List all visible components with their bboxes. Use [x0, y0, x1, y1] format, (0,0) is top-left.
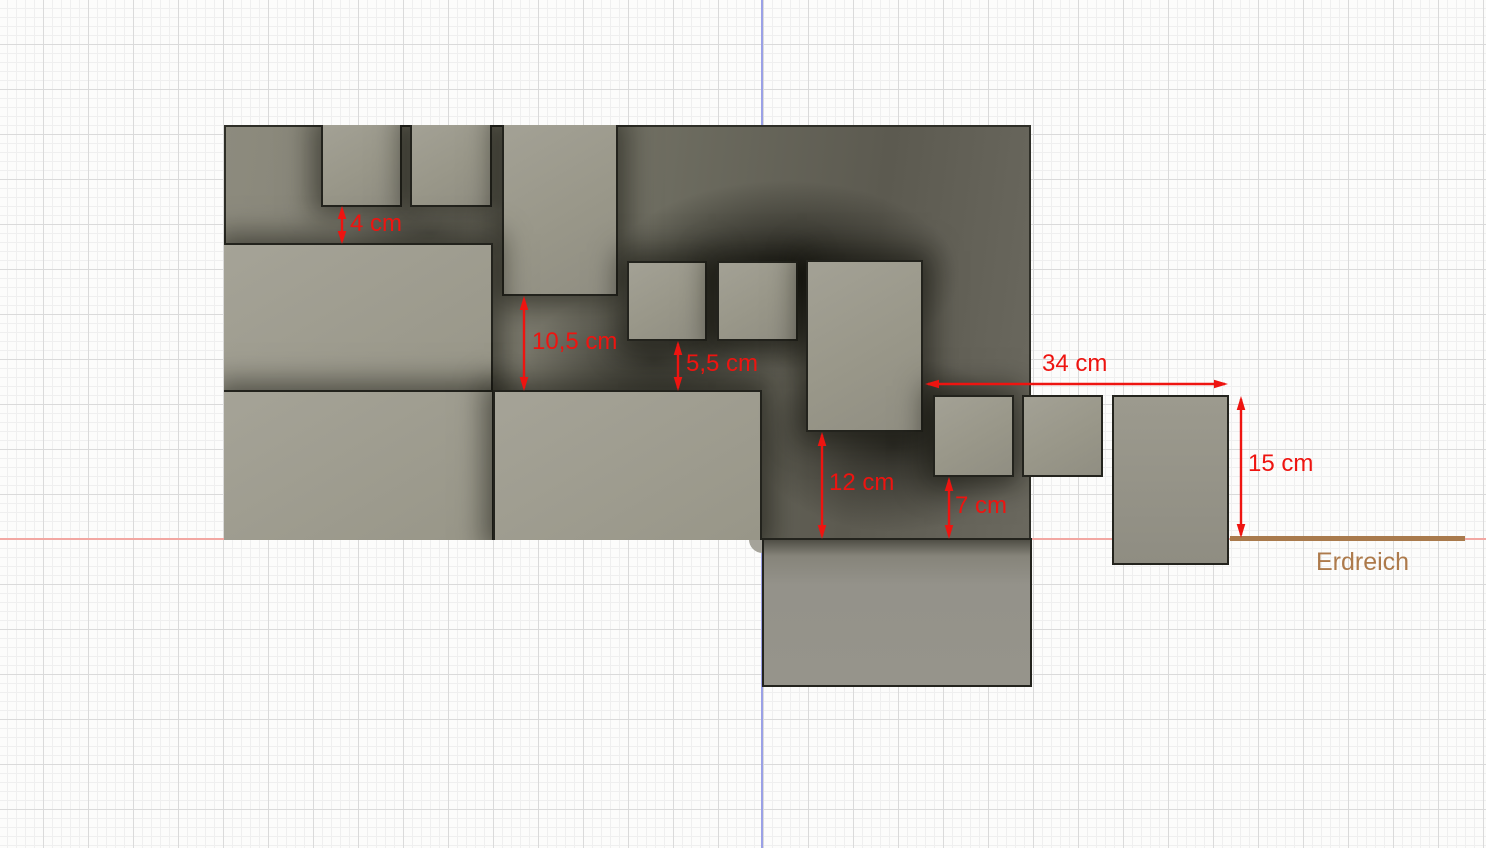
dimension-arrow-12cm[interactable] [815, 432, 829, 539]
dimension-arrow-5-5cm[interactable] [671, 341, 685, 391]
block-top-square-2[interactable] [410, 125, 492, 207]
block-bottom-mid[interactable] [493, 390, 762, 540]
block-right-tall[interactable] [1112, 395, 1229, 565]
ground-line[interactable] [1230, 536, 1465, 541]
block-low-square-1[interactable] [933, 395, 1014, 477]
ground-label[interactable]: Erdreich [1316, 548, 1409, 577]
block-low-square-2[interactable] [1022, 395, 1103, 477]
block-mid-left[interactable] [224, 243, 493, 392]
dimension-arrow-34cm[interactable] [925, 377, 1228, 391]
dimension-arrow-4cm[interactable] [335, 206, 349, 244]
dimension-label-5-5cm[interactable]: 5,5 cm [686, 351, 758, 376]
block-mid-tall[interactable] [806, 260, 923, 432]
block-mid-square-2[interactable] [717, 261, 798, 341]
section-cavity[interactable] [224, 125, 1031, 540]
dimension-arrow-15cm[interactable] [1234, 396, 1248, 538]
dimension-label-34cm[interactable]: 34 cm [1042, 351, 1107, 376]
block-bottom-left[interactable] [224, 390, 494, 540]
block-top-tall[interactable] [502, 125, 618, 296]
dimension-label-15cm[interactable]: 15 cm [1248, 451, 1313, 476]
cad-viewport[interactable]: Erdreich 4 cm 10,5 cm 5,5 cm 12 cm [0, 0, 1486, 848]
dimension-label-12cm[interactable]: 12 cm [829, 470, 894, 495]
dimension-label-10-5cm[interactable]: 10,5 cm [532, 329, 617, 354]
block-top-square-1[interactable] [321, 125, 402, 207]
dimension-arrow-10-5cm[interactable] [517, 296, 531, 391]
block-underground[interactable] [762, 538, 1032, 687]
dimension-label-4cm[interactable]: 4 cm [350, 211, 402, 236]
dimension-label-7cm[interactable]: 7 cm [955, 493, 1007, 518]
block-mid-square-1[interactable] [627, 261, 707, 341]
dimension-arrow-7cm[interactable] [942, 477, 956, 539]
